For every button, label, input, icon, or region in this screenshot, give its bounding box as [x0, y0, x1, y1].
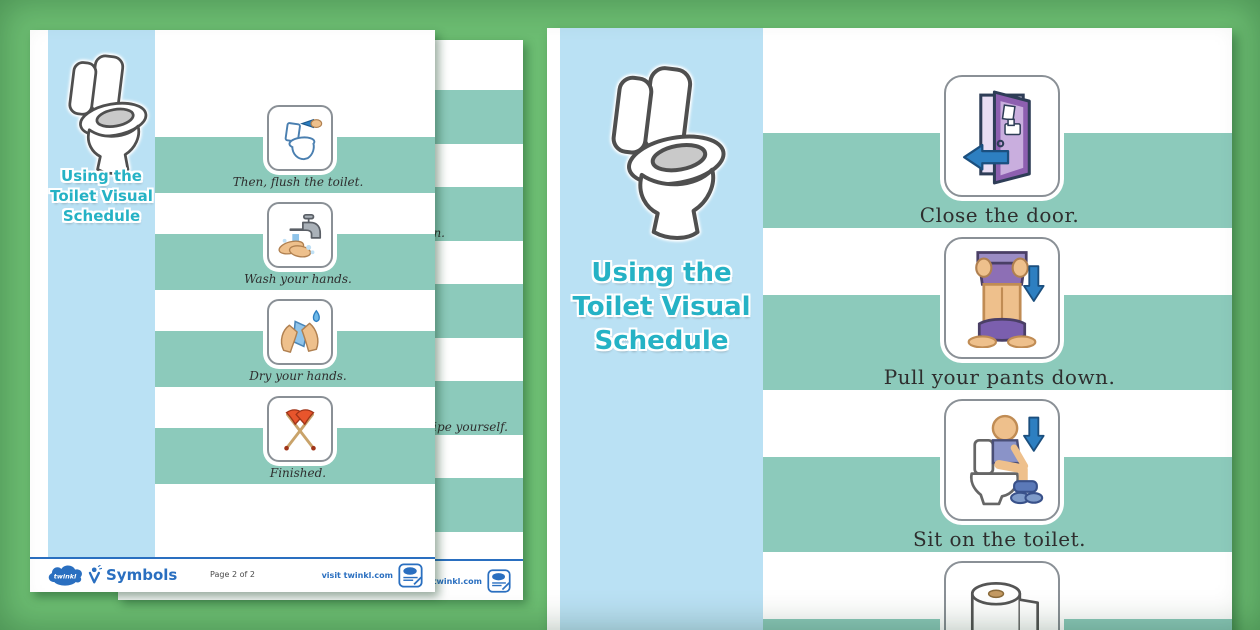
step-caption: Finished. [158, 466, 435, 480]
step-card [944, 75, 1060, 197]
toilet-illustration-icon [58, 50, 150, 182]
twinkl-quality-badge-icon [487, 569, 511, 593]
step-caption: Pull your pants down. [767, 365, 1232, 389]
step-card [267, 202, 333, 268]
close-door-icon [956, 86, 1048, 186]
page-footer: twinkl Symbols Page 2 of 2 visit twinkl.… [30, 557, 435, 592]
step-card [267, 396, 333, 462]
step-caption: Wash your hands. [158, 272, 435, 286]
toilet-roll-icon [956, 570, 1048, 630]
step-caption: Then, flush the toilet. [158, 175, 435, 189]
caption-fragment: n. [433, 226, 445, 240]
step-card [267, 105, 333, 171]
title-line: Using the [560, 256, 763, 290]
page-sidebar: Using the Toilet Visual Schedule [48, 30, 155, 557]
title-line: Schedule [560, 324, 763, 358]
visit-link-text: visit twinkl.com [322, 571, 393, 580]
step-caption: Close the door. [767, 203, 1232, 227]
pull-pants-down-icon [957, 248, 1047, 348]
step-caption: Dry your hands. [158, 369, 435, 383]
title-line: Schedule [48, 206, 155, 226]
page-title: Using the Toilet Visual Schedule [560, 256, 763, 358]
dry-hands-icon [275, 307, 325, 357]
finished-flags-icon [275, 404, 325, 454]
page-title: Using the Toilet Visual Schedule [48, 166, 155, 226]
step-card [944, 399, 1060, 521]
resource-preview-canvas: n. nd wipe yourself. . visit twinkl.com [0, 0, 1260, 630]
page-1-preview: Using the Toilet Visual Schedule [547, 28, 1232, 630]
step-card [944, 237, 1060, 359]
sit-on-toilet-icon [956, 410, 1048, 510]
title-line: Toilet Visual [48, 186, 155, 206]
page-sidebar: Using the Toilet Visual Schedule [560, 28, 763, 630]
step-card [267, 299, 333, 365]
wash-hands-icon [275, 210, 325, 260]
page-2-preview: Using the Toilet Visual Schedule Then, f… [30, 30, 435, 592]
twinkl-quality-badge-icon [398, 563, 423, 588]
step-caption: Sit on the toilet. [767, 527, 1232, 551]
title-line: Using the [48, 166, 155, 186]
flush-toilet-icon [275, 113, 325, 163]
step-card [944, 561, 1060, 630]
title-line: Toilet Visual [560, 290, 763, 324]
toilet-illustration-icon [588, 62, 738, 248]
